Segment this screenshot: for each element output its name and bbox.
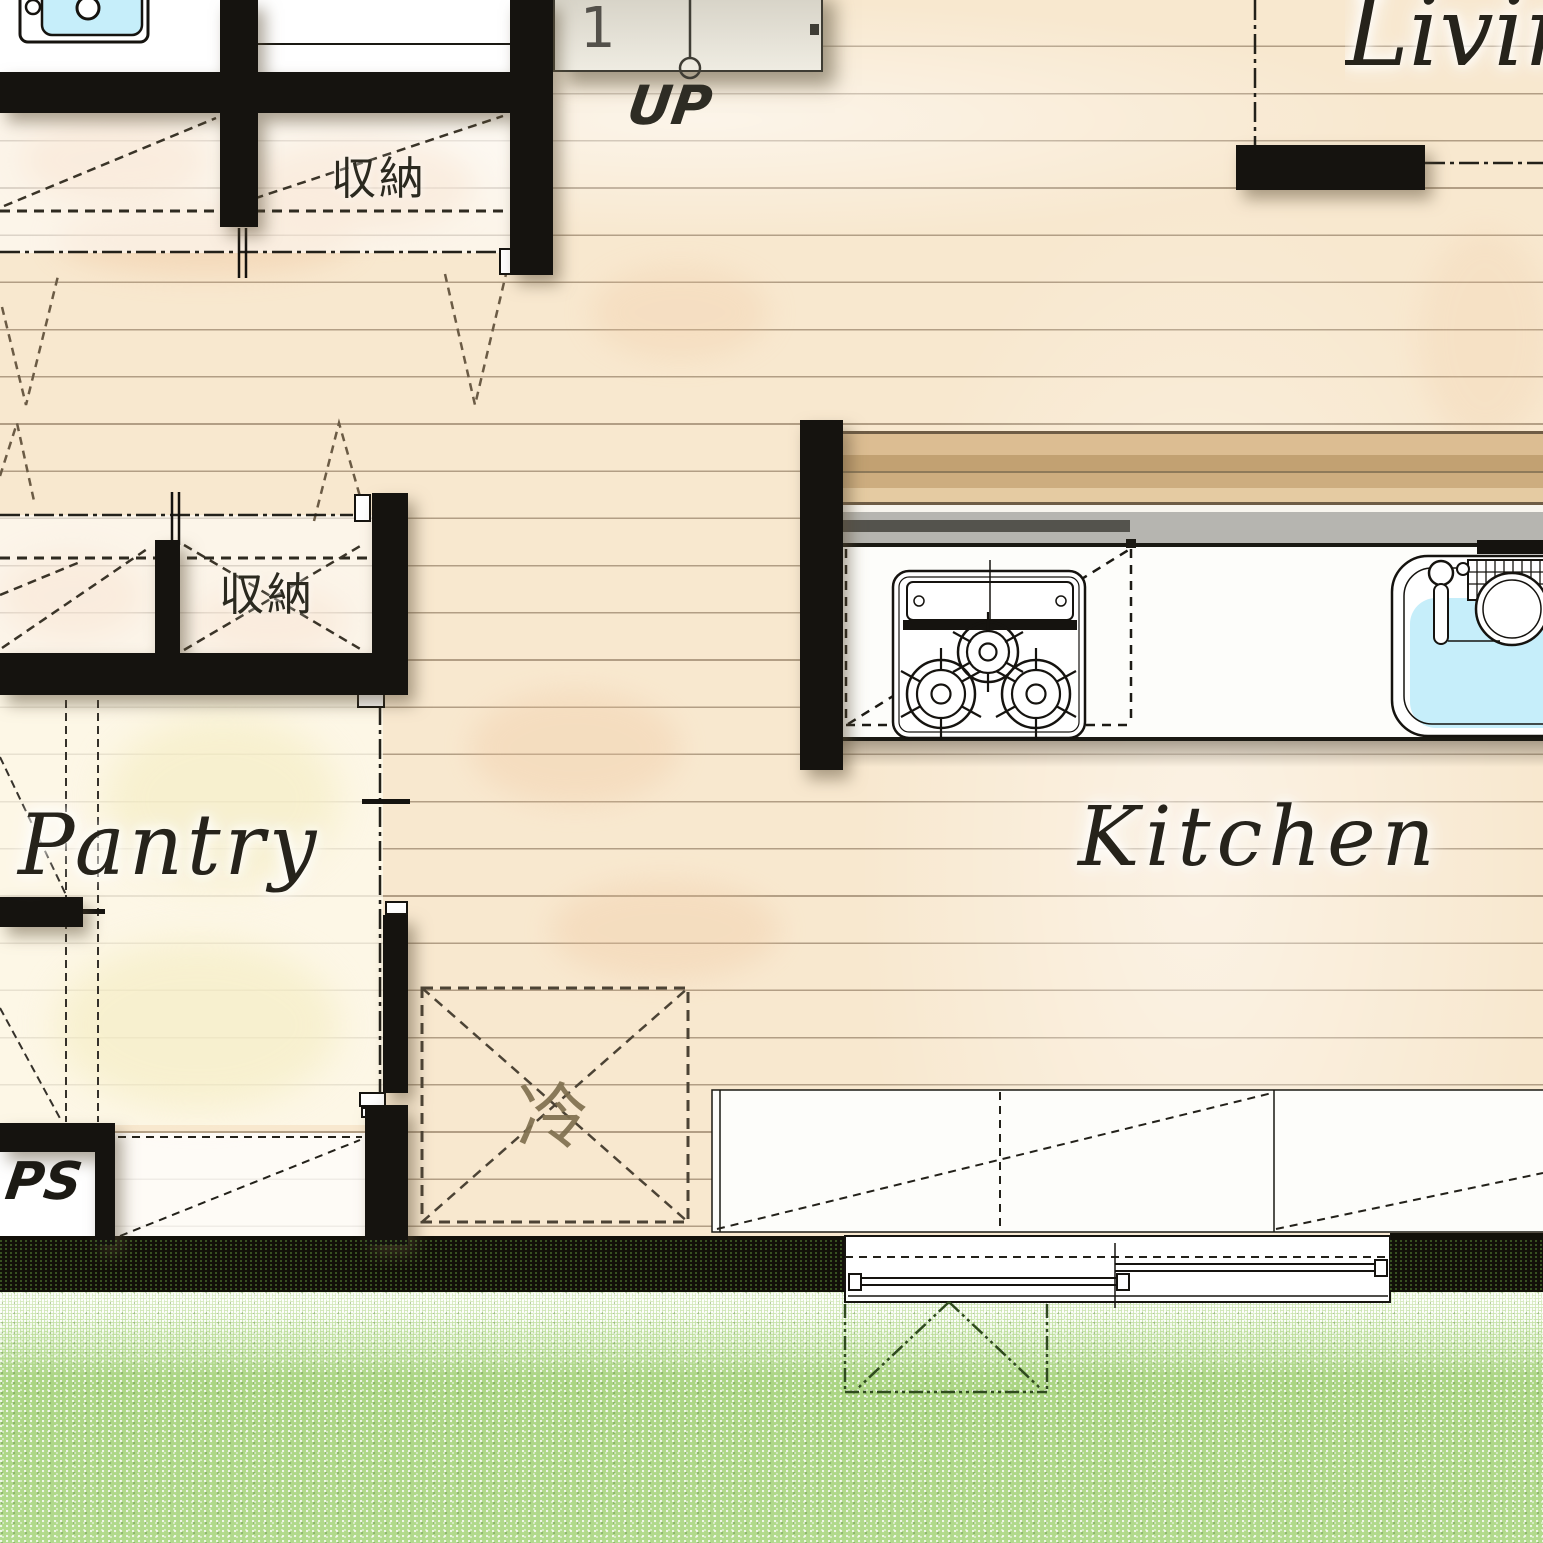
vanity-sink bbox=[20, 0, 148, 42]
door-swing-marks bbox=[0, 274, 506, 521]
kitchen-sink bbox=[1392, 540, 1543, 736]
gas-stove bbox=[893, 560, 1085, 740]
plan-linework bbox=[0, 0, 1543, 1543]
refrigerator-label: 冷 bbox=[517, 1058, 589, 1163]
wall-grass-noise bbox=[1390, 1240, 1543, 1292]
stair-step-number: 1 bbox=[580, 0, 616, 61]
room-label-pantry: Pantry bbox=[18, 796, 320, 894]
wall-grass-noise bbox=[0, 1240, 845, 1292]
room-label-living: Living bbox=[1345, 0, 1543, 108]
room-label-kitchen: Kitchen bbox=[1078, 790, 1441, 885]
stair-up-label: UP bbox=[624, 74, 716, 137]
stair-direction-line bbox=[680, 0, 819, 78]
opening-indicator-triangle bbox=[845, 1302, 1047, 1392]
low-cabinet bbox=[712, 1090, 1543, 1232]
room-label-closet-mid: 収納 bbox=[219, 558, 315, 623]
bar-counter bbox=[843, 431, 1543, 512]
understair-nook-marks bbox=[118, 1137, 362, 1236]
floor-plan: Living Kitchen Pantry 収納 収納 PS UP 1 冷 bbox=[0, 0, 1543, 1543]
sliding-window bbox=[845, 1236, 1390, 1308]
room-label-pipe-space: PS bbox=[2, 1152, 86, 1212]
room-label-closet-top: 収納 bbox=[331, 142, 427, 207]
